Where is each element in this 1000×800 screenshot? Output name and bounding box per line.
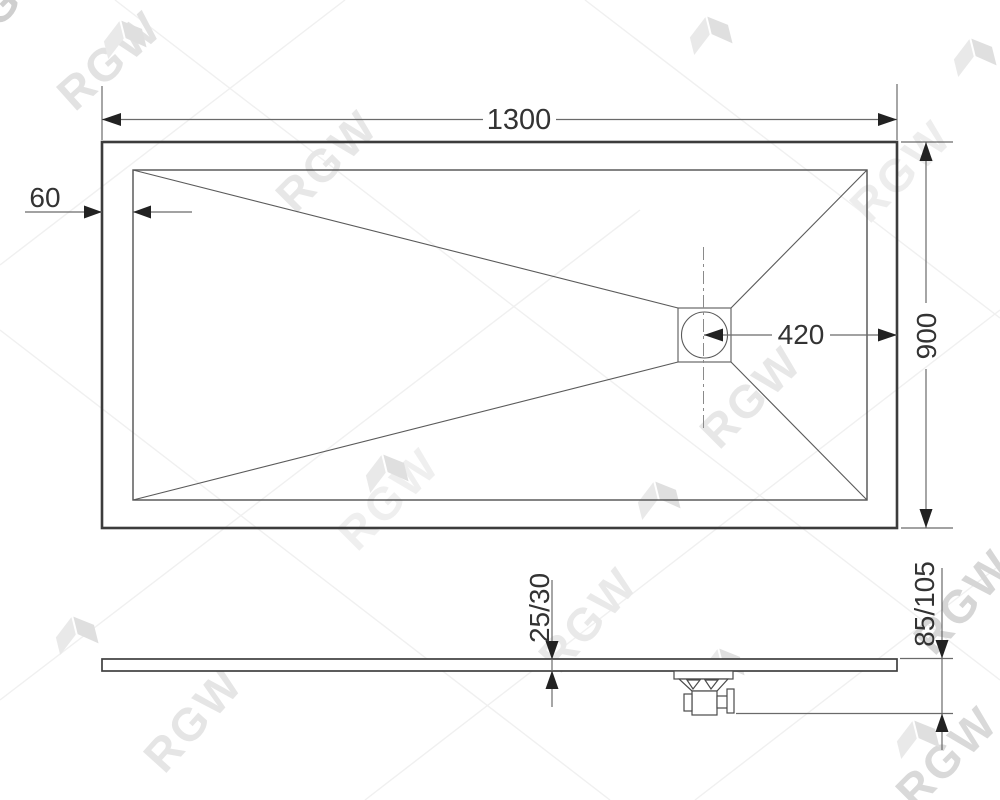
arrow-left-icon — [133, 206, 151, 219]
arrow-right-icon — [84, 206, 102, 219]
arrow-right-icon — [878, 113, 897, 126]
trap-flange — [674, 671, 733, 679]
arrow-right-icon — [878, 329, 897, 342]
dimension-drain-offset-420: 420 — [704, 319, 897, 350]
watermark-text: RGW — [133, 657, 253, 782]
watermark-text: RGW — [265, 99, 388, 222]
thickness-dimension-label: 25/30 — [524, 573, 555, 643]
trap-outlet-cap — [727, 689, 734, 713]
drain-trap — [674, 671, 734, 715]
slope-line-top-left — [133, 170, 678, 308]
total-height-dimension-label: 85/105 — [909, 561, 940, 647]
length-dimension-label: 1300 — [487, 104, 552, 136]
trap-body — [692, 691, 717, 715]
arrow-left-icon — [704, 329, 723, 342]
watermark-logo-icon — [634, 477, 681, 520]
watermark-text: RGW — [0, 0, 65, 62]
drain-offset-dimension-label: 420 — [778, 319, 825, 350]
dimension-width-900: 900 — [901, 142, 953, 528]
watermark-text: RGW — [327, 437, 450, 560]
trap-knob — [684, 694, 692, 711]
watermark-hairline — [0, 0, 345, 265]
watermark-text: RGW — [47, 0, 172, 120]
dimension-thickness-25-30: 25/30 — [524, 573, 559, 707]
technical-drawing-canvas: RGW RGW RGW RGW RGW RGW RGW RGW RGW RGW — [0, 0, 1000, 800]
watermark-hairline — [0, 330, 610, 800]
width-dimension-label: 900 — [911, 313, 942, 360]
dimension-total-height-85-105: 85/105 — [736, 561, 953, 750]
arrow-left-icon — [102, 113, 121, 126]
watermark-logo-icon — [52, 612, 99, 655]
shower-tray-drawing: RGW RGW RGW RGW RGW RGW RGW RGW RGW RGW — [0, 0, 1000, 800]
trap-cone — [679, 679, 728, 691]
watermark-hairline — [365, 310, 1000, 800]
rim-dimension-label: 60 — [29, 182, 60, 213]
watermark-logo-icon — [686, 12, 733, 55]
tray-profile — [102, 659, 897, 671]
watermark-logo-icon — [950, 34, 997, 77]
slope-line-top-right — [731, 170, 867, 308]
dimension-rim-60: 60 — [25, 182, 192, 219]
dimension-length-1300: 1300 — [102, 84, 897, 140]
arrow-down-icon — [920, 509, 933, 528]
watermark-text: RGW — [689, 335, 812, 458]
